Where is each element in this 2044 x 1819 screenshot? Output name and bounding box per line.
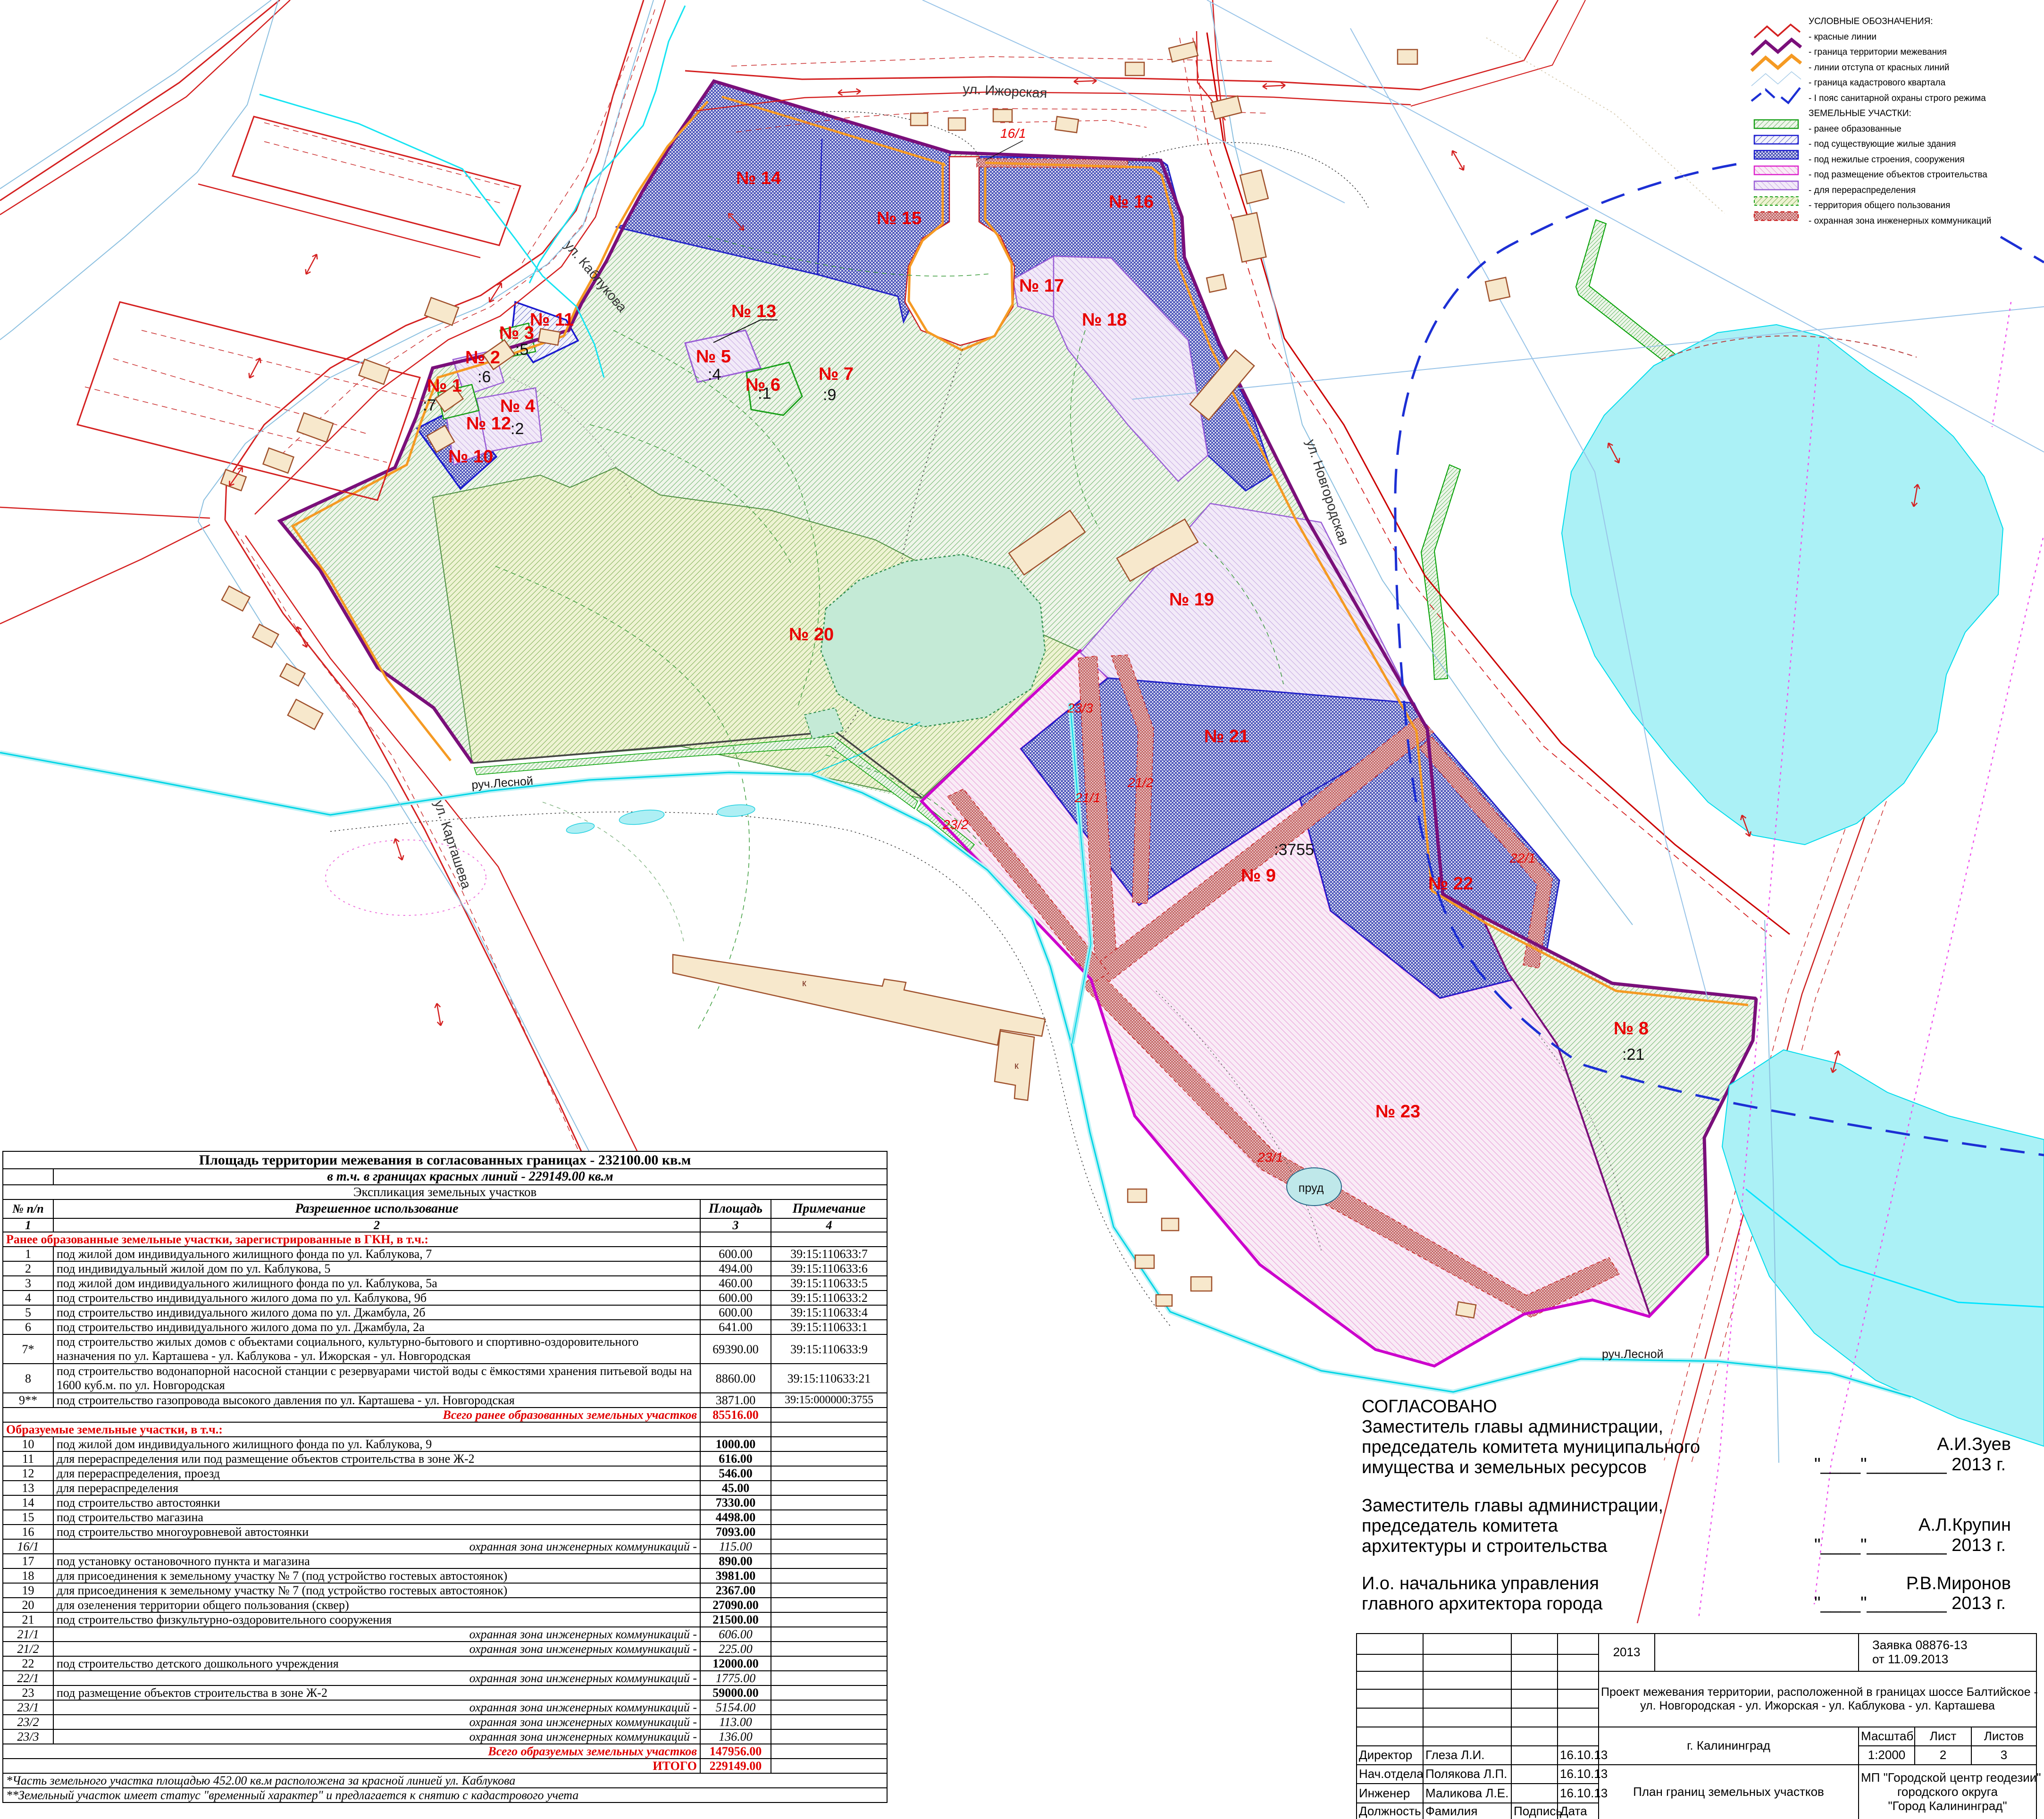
svg-text::6: :6	[477, 368, 491, 386]
svg-text::9: :9	[823, 386, 836, 404]
svg-text:руч.Лесной: руч.Лесной	[1602, 1348, 1664, 1361]
svg-text:№ 5: № 5	[696, 347, 731, 367]
svg-text:№ 8: № 8	[1614, 1019, 1649, 1039]
svg-text::3755: :3755	[1274, 841, 1314, 859]
svg-text::1: :1	[758, 385, 771, 402]
svg-text:№ 23: № 23	[1375, 1102, 1420, 1122]
svg-text:21/1: 21/1	[1074, 790, 1101, 805]
svg-text:№ 21: № 21	[1204, 727, 1249, 746]
svg-text:23/2: 23/2	[942, 817, 969, 832]
svg-text::4: :4	[708, 366, 721, 384]
svg-text:№ 22: № 22	[1428, 874, 1473, 894]
svg-text:16/1: 16/1	[1000, 126, 1026, 141]
svg-text:пруд: пруд	[1298, 1182, 1324, 1195]
svg-text:№ 15: № 15	[877, 209, 921, 228]
svg-text:№ 11: № 11	[530, 310, 574, 330]
svg-text:№ 1: № 1	[427, 376, 462, 396]
svg-text:№ 7: № 7	[819, 364, 854, 384]
svg-text:№ 17: № 17	[1019, 276, 1064, 296]
svg-text::2: :2	[511, 420, 524, 438]
svg-text:23/3: 23/3	[1067, 701, 1093, 715]
svg-text:№ 13: № 13	[731, 302, 776, 321]
svg-text:к: к	[1014, 1061, 1019, 1071]
svg-text:22/1: 22/1	[1509, 851, 1536, 865]
svg-text:к: к	[802, 978, 806, 989]
svg-text:№ 12: № 12	[466, 414, 511, 434]
svg-text:№ 4: № 4	[500, 396, 535, 416]
svg-text:23/1: 23/1	[1257, 1150, 1283, 1165]
svg-text:№ 14: № 14	[736, 168, 781, 188]
svg-text::7: :7	[423, 396, 436, 414]
svg-text:№ 3: № 3	[499, 323, 534, 343]
svg-text:№ 16: № 16	[1109, 192, 1154, 212]
svg-text:№ 19: № 19	[1169, 590, 1214, 610]
svg-text:№ 20: № 20	[789, 625, 834, 645]
svg-text:21/2: 21/2	[1127, 775, 1154, 790]
svg-text:№ 18: № 18	[1082, 310, 1127, 330]
svg-text::5: :5	[515, 341, 528, 359]
svg-text:№ 10: № 10	[448, 447, 493, 467]
svg-text::21: :21	[1622, 1046, 1644, 1064]
svg-text:№ 9: № 9	[1241, 866, 1276, 886]
svg-text:№ 2: № 2	[465, 348, 500, 368]
